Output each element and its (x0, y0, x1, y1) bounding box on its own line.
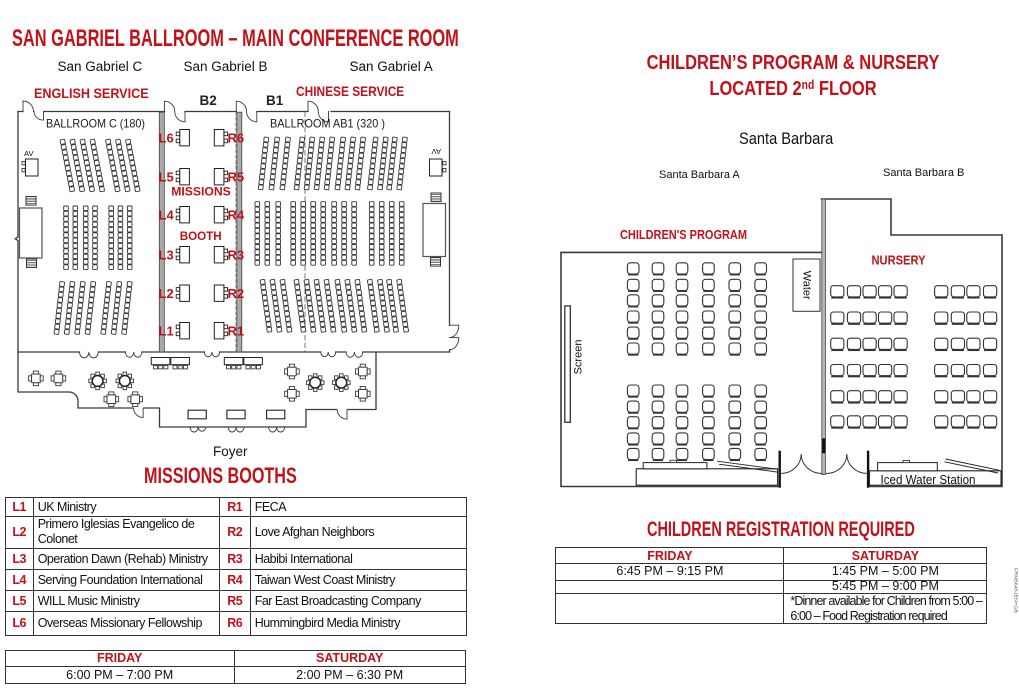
svg-text:Water: Water (801, 271, 813, 300)
svg-text:R2: R2 (228, 286, 245, 301)
svg-text:L4: L4 (159, 208, 175, 223)
svg-text:NURSERY: NURSERY (872, 253, 926, 268)
svg-text:R5: R5 (228, 170, 245, 185)
svg-text:L6: L6 (159, 131, 174, 146)
svg-text:AV: AV (432, 147, 441, 156)
svg-text:R1: R1 (228, 324, 245, 339)
svg-text:BALLROOM AB1 (320 ): BALLROOM AB1 (320 ) (270, 116, 385, 130)
svg-text:R4: R4 (228, 208, 245, 223)
svg-text:AV: AV (24, 149, 33, 158)
svg-text:L2: L2 (159, 286, 174, 301)
svg-text:L5: L5 (159, 170, 174, 185)
svg-text:FRM5645JEN+GB: FRM5645JEN+GB (1014, 568, 1019, 613)
svg-text:BOOTH: BOOTH (180, 229, 222, 243)
svg-text:BALLROOM C (180): BALLROOM C (180) (46, 116, 145, 130)
svg-text:Screen: Screen (573, 340, 585, 375)
svg-text:R3: R3 (228, 248, 245, 263)
svg-text:MISSIONS: MISSIONS (171, 184, 231, 198)
svg-text:Iced Water Station: Iced Water Station (881, 473, 976, 487)
svg-text:R6: R6 (228, 131, 245, 146)
svg-text:L1: L1 (159, 324, 174, 339)
svg-text:L3: L3 (159, 248, 174, 263)
svg-text:CHILDREN'S PROGRAM: CHILDREN'S PROGRAM (620, 227, 747, 242)
